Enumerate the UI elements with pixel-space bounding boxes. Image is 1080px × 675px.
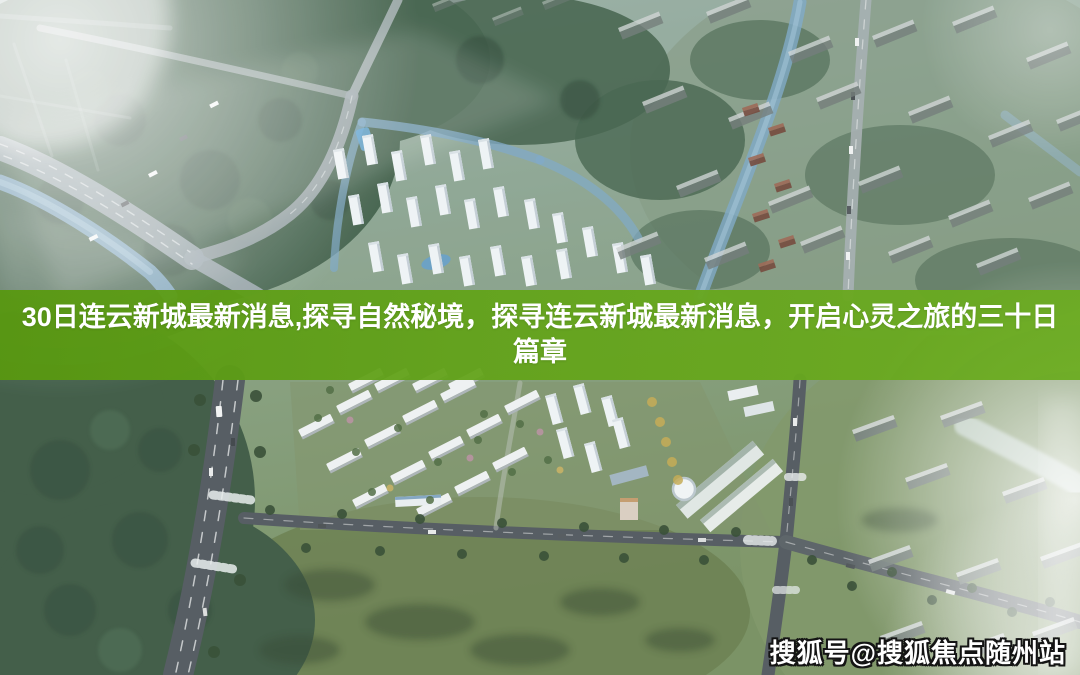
watermark: 搜狐号@搜狐焦点随州站 [770,633,1066,670]
title-line-2: 篇章 [513,335,567,370]
article-hero-image: 30日连云新城最新消息,探寻自然秘境，探寻连云新城最新消息，开启心灵之旅的三十日… [0,0,1080,675]
title-banner: 30日连云新城最新消息,探寻自然秘境，探寻连云新城最新消息，开启心灵之旅的三十日… [0,290,1080,380]
title-line-1: 30日连云新城最新消息,探寻自然秘境，探寻连云新城最新消息，开启心灵之旅的三十日 [22,300,1059,335]
